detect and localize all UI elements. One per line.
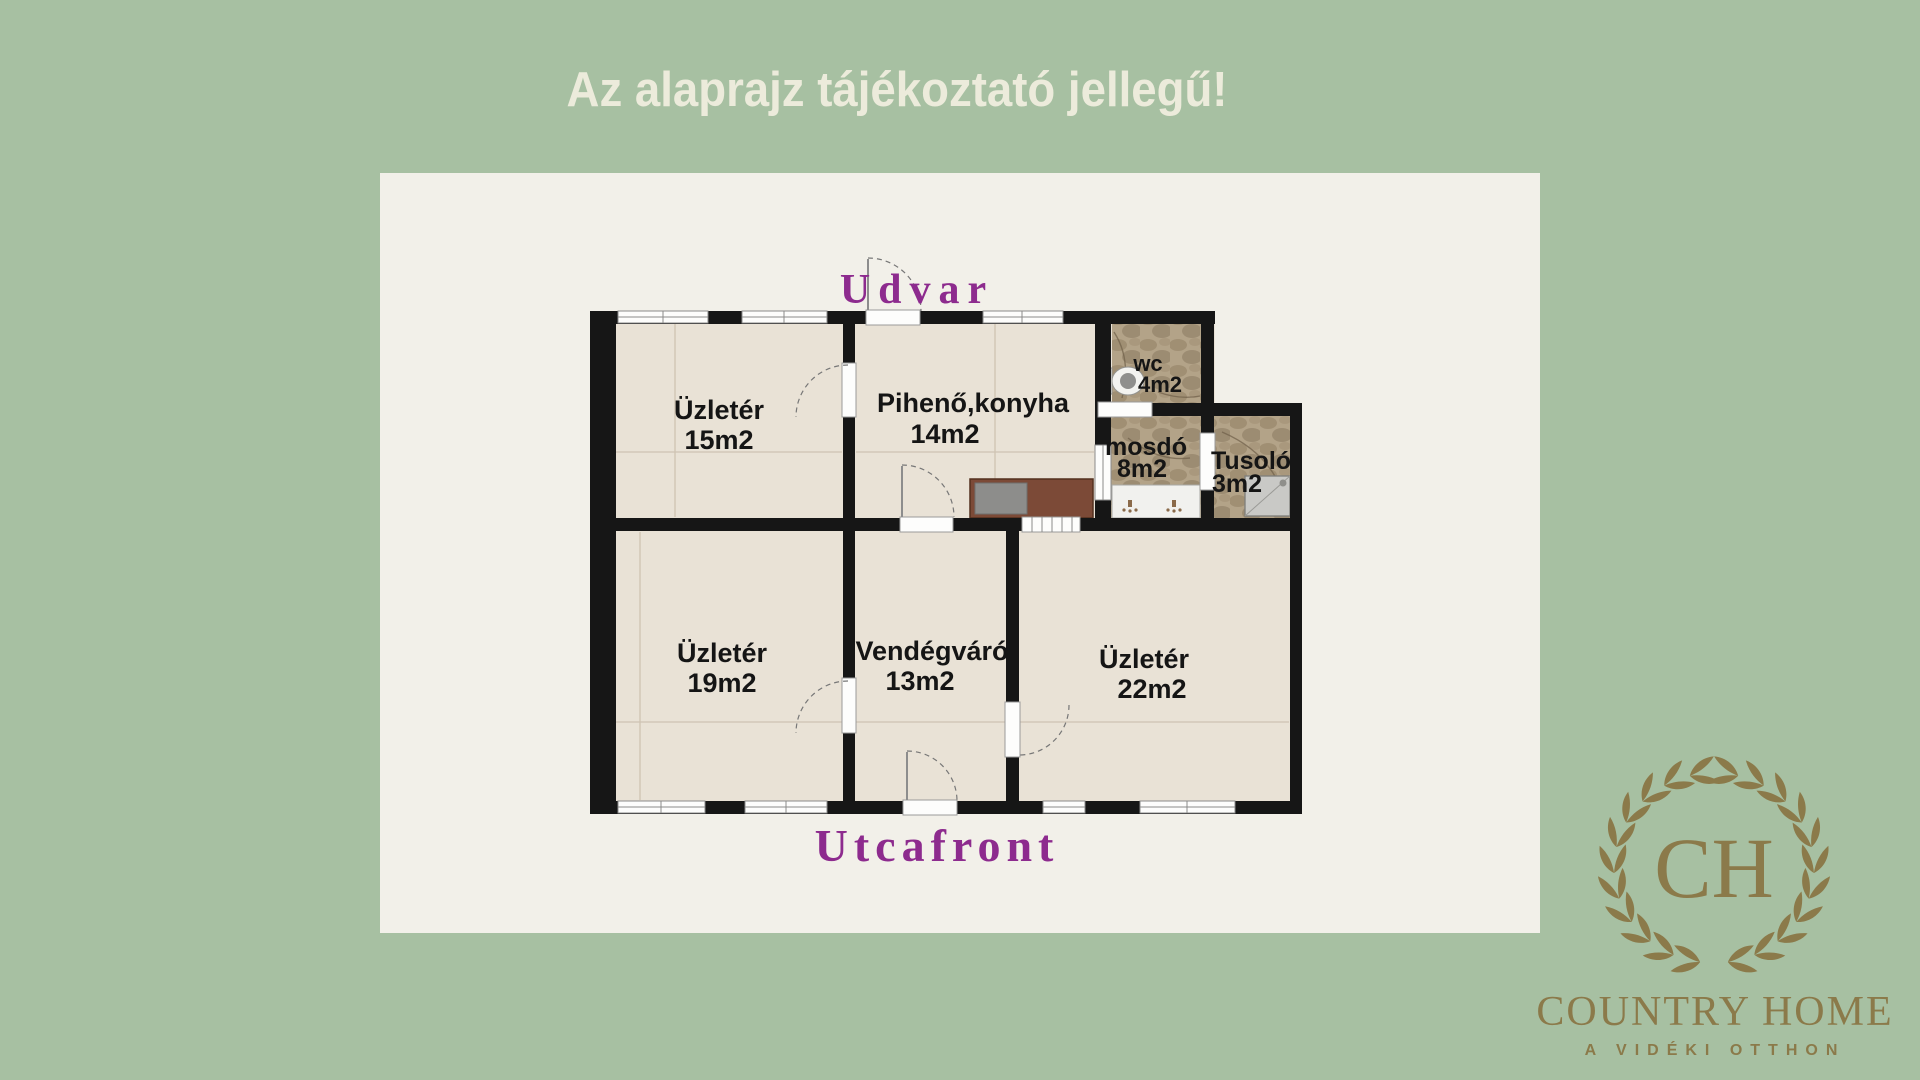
label-udvar: Udvar (840, 267, 994, 313)
room-uzleter22-name: Üzletér (1099, 644, 1190, 674)
room-vendegvaro-name: Vendégváró (855, 636, 1008, 666)
label-utcafront: Utcafront (815, 820, 1060, 871)
room-piheno-area: 14m2 (910, 419, 979, 449)
room-vendegvaro-area: 13m2 (885, 666, 954, 696)
kitchen-counter (970, 479, 1093, 518)
room-uzleter19-name: Üzletér (677, 638, 768, 668)
floorplan-drawing: Udvar Utcafront Üzletér 15m2 Pihenő,kony… (380, 173, 1540, 933)
room-mosdo-area: 8m2 (1117, 455, 1167, 483)
brand-name: COUNTRY HOME (1520, 988, 1910, 1036)
room-tusolo-area: 3m2 (1212, 470, 1262, 498)
room-wc-area: 4m2 (1138, 372, 1182, 397)
room-uzleter22-area: 22m2 (1117, 674, 1186, 704)
room-uzleter15-area: 15m2 (684, 425, 753, 455)
laurel-wreath-icon: CH (1520, 750, 1910, 1000)
page-title: Az alaprajz tájékoztató jellegű! (490, 62, 1305, 118)
brand-logo: CH COUNTRY HOME A VIDÉKI OTTHON (1520, 750, 1910, 1080)
room-uzleter19-area: 19m2 (687, 668, 756, 698)
brand-tagline: A VIDÉKI OTTHON (1520, 1042, 1910, 1060)
room-piheno-name: Pihenő,konyha (877, 388, 1070, 418)
room-uzleter15-name: Üzletér (674, 395, 765, 425)
sink-counter (1112, 485, 1200, 518)
logo-monogram: CH (1654, 820, 1773, 916)
slide: Az alaprajz tájékoztató jellegű! (0, 0, 1920, 1080)
